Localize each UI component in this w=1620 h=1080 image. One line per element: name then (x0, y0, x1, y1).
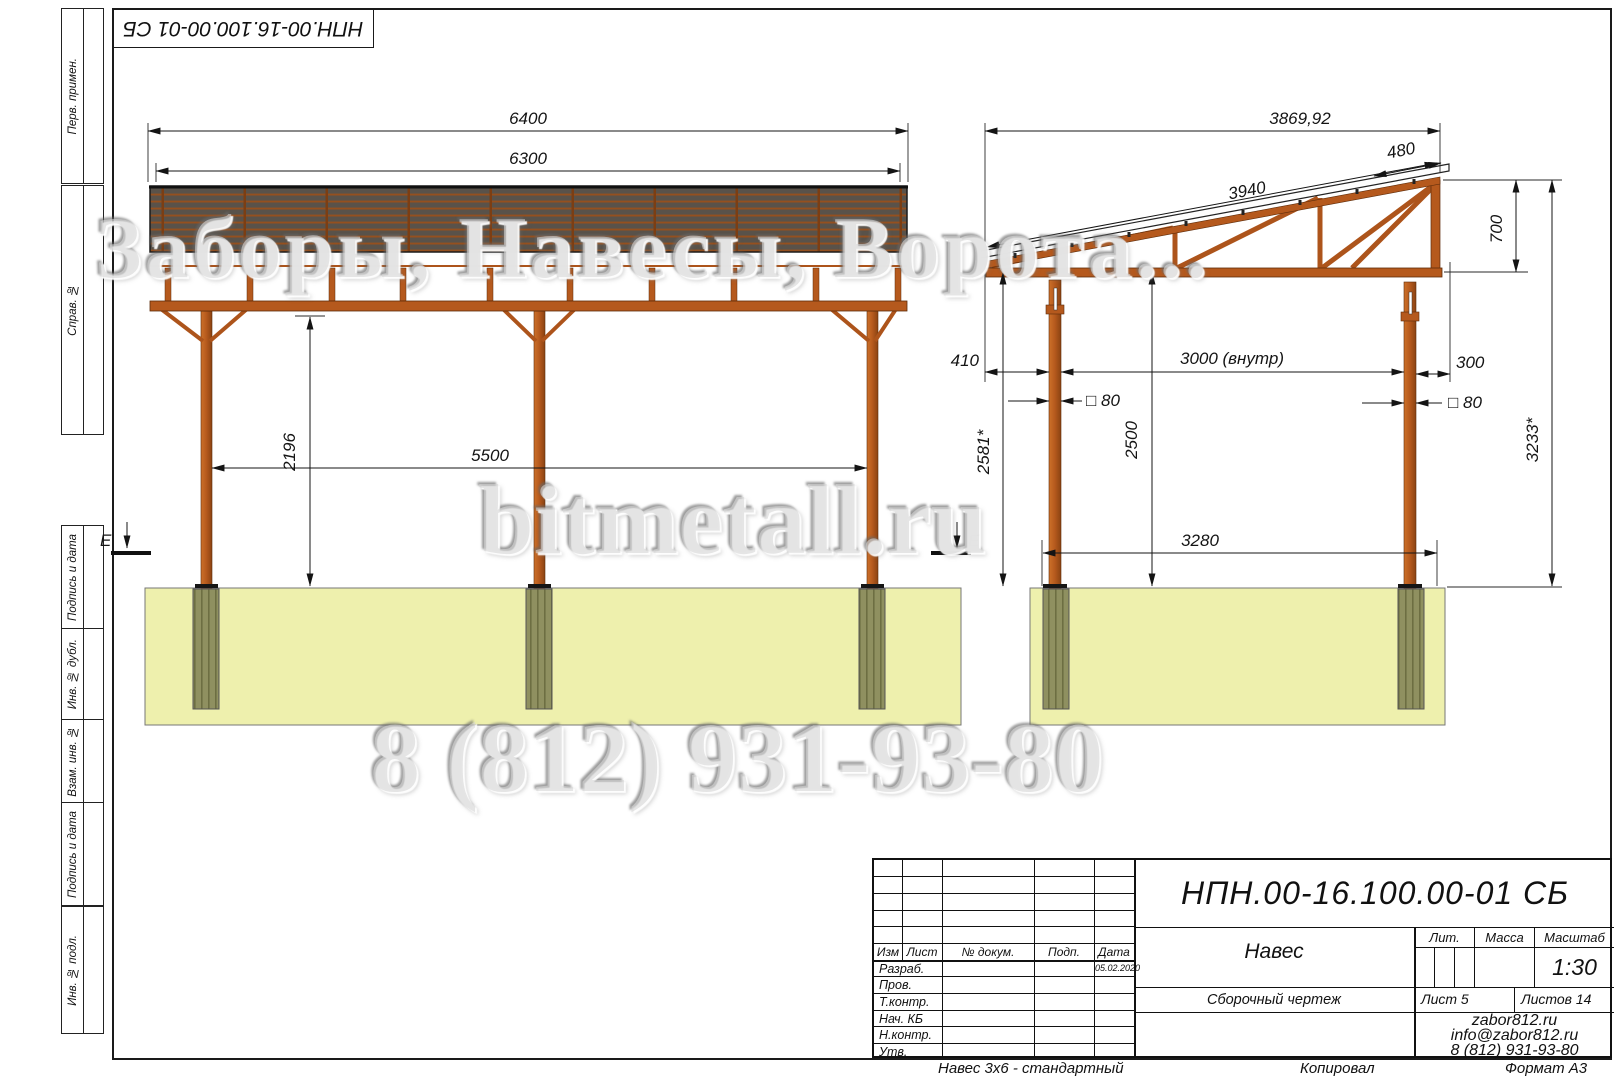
tb-site: zabor812.ru (1415, 1013, 1614, 1028)
side-top-chord (988, 177, 1440, 268)
tb-scale-label: Масштаб (1535, 928, 1614, 946)
front-post (534, 311, 545, 588)
side-view: 3869,92 480 3940 700 3233* 410 3000 (вну… (951, 109, 1562, 725)
tb-header-doc: № докум. (942, 945, 1034, 959)
front-base-plate (195, 584, 218, 588)
section-mark-letter: E (100, 531, 112, 550)
side-base-plate (1398, 584, 1422, 588)
front-purlin-stubs (165, 268, 901, 301)
dim-side-post-section-left: □ 80 (1086, 391, 1120, 410)
tb-product-name: Навес (1136, 930, 1412, 974)
dim-front-clear-height: 2196 (280, 433, 299, 472)
tb-role-tkontr: Т.контр. (879, 995, 929, 1009)
dim-front-roof-width: 6300 (509, 149, 547, 168)
tb-mass-label: Масса (1475, 928, 1534, 946)
tb-sheets: Листов 14 (1521, 991, 1591, 1007)
dim-side-clear-height: 2500 (1122, 421, 1141, 460)
dim-side-height-left: 2581* (974, 428, 993, 475)
dim-side-total-height: 3233* (1523, 416, 1542, 462)
front-base-plate (528, 584, 551, 588)
dim-side-left-offset: 410 (951, 351, 980, 370)
dim-side-footing-spacing: 3280 (1181, 531, 1219, 550)
side-footing (1043, 589, 1069, 709)
front-braces (161, 309, 896, 341)
front-view: 6400 6300 2196 5500 E E (100, 109, 980, 725)
footer-product-name: Навес 3х6 - стандартный (938, 1060, 1124, 1077)
front-roof-panel (150, 186, 907, 252)
side-post-left (1049, 280, 1061, 588)
title-block: Изм Лист № докум. Подп. Дата Разраб. Про… (872, 858, 1612, 1058)
front-footing (859, 589, 885, 709)
side-post-slot (1409, 292, 1412, 314)
section-mark-right: E (931, 522, 980, 553)
tb-role-nachkb: Нач. КБ (879, 1012, 923, 1026)
front-ground-slab (145, 588, 961, 725)
front-post (867, 311, 878, 588)
tb-company: zabor812.ru info@zabor812.ru 8 (812) 931… (1415, 1013, 1614, 1058)
side-truss-end-post (1431, 180, 1440, 270)
dim-side-overhang: 480 (1385, 139, 1417, 163)
dim-side-inner-width: 3000 (внутр) (1180, 349, 1284, 368)
side-footing (1398, 589, 1424, 709)
side-bottom-chord (986, 268, 1442, 277)
tb-role-nkontr: Н.контр. (879, 1028, 932, 1042)
side-post-right (1404, 282, 1416, 588)
tb-designation: НПН.00-16.100.00-01 СБ (1136, 860, 1614, 926)
front-footing (526, 589, 552, 709)
side-truss-web (992, 186, 1434, 268)
front-base-plate (861, 584, 884, 588)
tb-scale-value: 1:30 (1535, 948, 1614, 986)
front-dimensions: 6400 6300 2196 5500 (148, 109, 908, 586)
dim-front-overall-width: 6400 (509, 109, 547, 128)
front-bottom-chord (150, 301, 907, 311)
tb-header-list: Лист (902, 945, 942, 959)
front-footing (193, 589, 219, 709)
tb-header-izm: Изм (874, 945, 902, 959)
dim-front-post-spacing: 5500 (471, 446, 509, 465)
section-mark-left: E (100, 522, 151, 553)
side-base-plate (1043, 584, 1067, 588)
dim-side-truss-height: 700 (1487, 214, 1506, 243)
side-post-slot (1054, 288, 1057, 310)
tb-phone: 8 (812) 931-93-80 (1415, 1043, 1614, 1058)
section-mark-letter: E (968, 531, 980, 550)
tb-role-prov: Пров. (879, 978, 912, 992)
tb-role-utv: Утв. (879, 1045, 907, 1059)
tb-date-value: 05.02.2020 (1095, 963, 1140, 973)
tb-header-sign: Подп. (1034, 945, 1094, 959)
side-dimensions: 3869,92 480 3940 700 3233* 410 3000 (вну… (951, 109, 1562, 587)
tb-role-razrab: Разраб. (879, 962, 924, 976)
tb-header-date: Дата (1094, 945, 1134, 959)
dim-side-overall: 3869,92 (1269, 109, 1331, 128)
tb-sheet: Лист 5 (1421, 991, 1469, 1007)
dim-side-post-section-right: □ 80 (1448, 393, 1482, 412)
footer-format: Формат А3 (1505, 1060, 1587, 1077)
dim-side-right-offset: 300 (1456, 353, 1485, 372)
footer-copied: Копировал (1300, 1060, 1375, 1077)
tb-doc-type: Сборочный чертеж (1136, 988, 1412, 1012)
drawing-sheet: НПН.00-16.100.00-01 СБ Перв. примен. Спр… (0, 0, 1620, 1080)
tb-email: info@zabor812.ru (1415, 1028, 1614, 1043)
front-post (201, 311, 212, 588)
tb-lit-label: Лит. (1415, 928, 1474, 946)
side-ground-slab (1030, 588, 1445, 725)
